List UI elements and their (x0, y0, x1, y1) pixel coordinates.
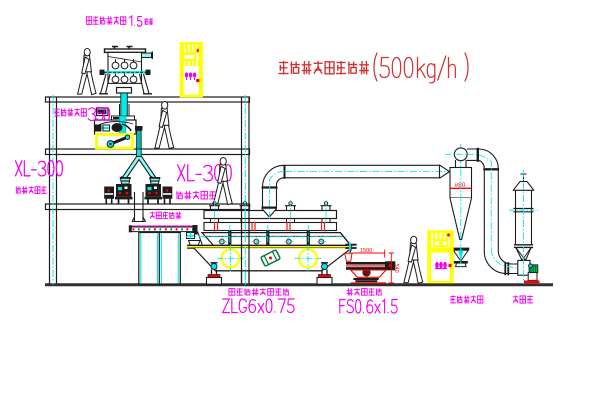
svg-text:540: 540 (393, 264, 399, 273)
svg-text:1500: 1500 (360, 248, 372, 254)
svg-text:#80: #80 (455, 182, 466, 189)
